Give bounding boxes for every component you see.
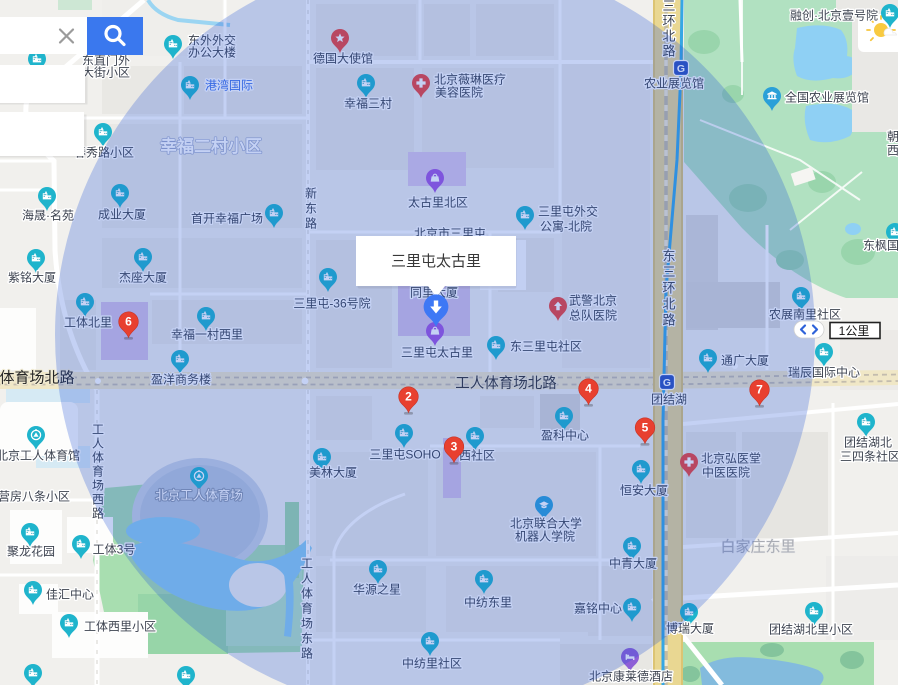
svg-text:营房八条小区: 营房八条小区 xyxy=(0,488,70,503)
svg-text:1公里: 1公里 xyxy=(839,324,870,338)
svg-text:2: 2 xyxy=(405,389,412,403)
svg-text:7: 7 xyxy=(756,382,763,396)
svg-text:团结湖北里小区: 团结湖北里小区 xyxy=(769,621,853,636)
svg-text:4: 4 xyxy=(585,381,592,395)
svg-text:朝: 朝 xyxy=(887,129,898,143)
svg-text:三里屯太古里: 三里屯太古里 xyxy=(391,253,481,270)
svg-text:三四条社区: 三四条社区 xyxy=(840,448,898,463)
svg-text:5: 5 xyxy=(642,420,649,434)
svg-text:工体西里小区: 工体西里小区 xyxy=(84,619,156,633)
svg-text:海晟·名苑: 海晟·名苑 xyxy=(22,207,74,222)
svg-text:全国农业展览馆: 全国农业展览馆 xyxy=(785,89,869,104)
svg-text:佳汇中心: 佳汇中心 xyxy=(46,586,94,601)
svg-text:北京工人体育馆: 北京工人体育馆 xyxy=(0,447,80,462)
svg-text:东枫国: 东枫国 xyxy=(863,237,898,252)
svg-text:融创·北京壹号院: 融创·北京壹号院 xyxy=(790,8,878,22)
svg-text:西: 西 xyxy=(887,143,898,157)
svg-text:大街小区: 大街小区 xyxy=(82,65,130,79)
svg-text:团结湖北: 团结湖北 xyxy=(844,434,892,449)
svg-text:6: 6 xyxy=(125,314,132,328)
svg-text:聚龙花园: 聚龙花园 xyxy=(7,543,55,558)
svg-text:3: 3 xyxy=(451,439,458,453)
svg-text:紫铭大厦: 紫铭大厦 xyxy=(8,269,56,284)
